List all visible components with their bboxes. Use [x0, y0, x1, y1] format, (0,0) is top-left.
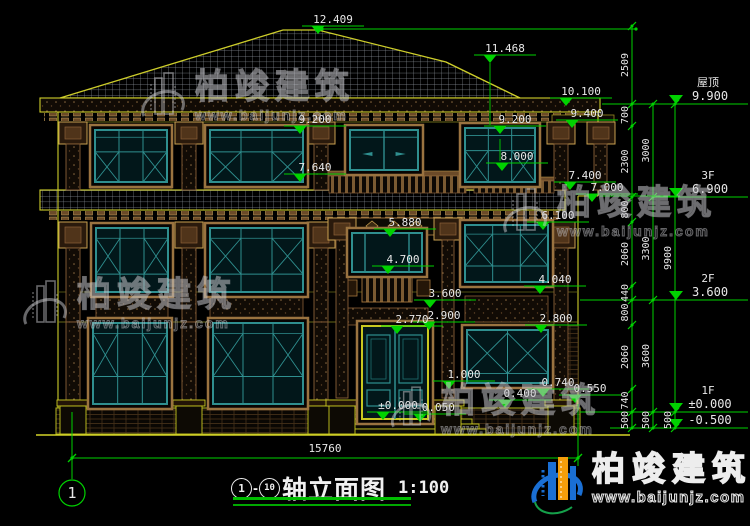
overall-width-value: 15760 — [308, 442, 341, 455]
elevation-value: 2.800 — [539, 312, 572, 325]
storey-level-marker: 屋顶9.900 — [654, 76, 748, 104]
window-1f-mid — [208, 318, 308, 409]
elevation-value: 4.040 — [538, 273, 571, 286]
pilaster-shaft — [66, 248, 80, 322]
marker-triangle — [484, 55, 497, 63]
dim-node — [631, 25, 634, 28]
elevation-value: 9.200 — [298, 113, 331, 126]
dim-chain-value: 3600 — [641, 344, 652, 368]
window-3f-mid — [205, 125, 308, 187]
pilaster-capital-inset — [313, 227, 329, 243]
window-frame — [93, 323, 167, 404]
axis-bubble-number: 1 — [67, 484, 76, 502]
pilaster-shaft — [66, 322, 80, 400]
elevation-value: 7.640 — [298, 161, 331, 174]
elevation-value: 2.900 — [427, 309, 460, 322]
window-frame — [465, 225, 548, 282]
dim-node — [652, 103, 655, 106]
elevation-value: 11.468 — [485, 42, 525, 55]
pilaster-base — [548, 406, 574, 434]
title-separator: - — [253, 480, 258, 497]
brand-logo-url: www.baijunjz.com — [592, 489, 750, 506]
pilaster-base-cap — [326, 400, 358, 406]
storey-name: 屋顶 — [697, 76, 719, 89]
elevation-value: 1.000 — [447, 368, 480, 381]
axis-from-bubble: 1 — [231, 478, 252, 499]
window-3f-left — [90, 125, 172, 187]
elevation-value: 5.880 — [388, 216, 421, 229]
pilaster-capital-inset — [553, 127, 569, 139]
marker-triangle — [499, 400, 512, 408]
marker-triangle — [424, 300, 437, 308]
dim-chain-value: 9900 — [663, 246, 674, 270]
window-2f-mid — [205, 223, 308, 297]
storey-elevation: 3.600 — [692, 285, 728, 299]
elevation-marker: 7.000 — [576, 181, 638, 202]
dim-chain-value: 3300 — [641, 236, 652, 260]
pilaster-shaft — [182, 248, 196, 322]
window-frame — [210, 228, 303, 292]
pilaster-shaft — [314, 322, 328, 400]
elevation-value: 6.100 — [541, 209, 574, 222]
elevation-value: 3.600 — [428, 287, 461, 300]
dim-chain-value: 700 — [620, 106, 631, 124]
pilaster-capital-inset — [313, 127, 329, 139]
elevation-value: 12.409 — [313, 13, 353, 26]
pilaster-capital-inset — [65, 127, 81, 139]
cad-canvas: 12.40911.46810.1009.4009.2009.2008.0007.… — [0, 0, 750, 526]
pilaster-base — [329, 406, 355, 434]
window-frame — [95, 130, 167, 182]
elevation-value: 2.770 — [395, 313, 428, 326]
dim-chain-value: 500 — [620, 411, 631, 429]
dim-node — [631, 324, 634, 327]
house-facade — [36, 30, 630, 435]
dim-chain-value: 2060 — [620, 242, 631, 266]
elevation-value: 0.400 — [503, 387, 536, 400]
storey-elevation: -0.500 — [688, 413, 731, 427]
dim-node — [631, 221, 634, 224]
pilaster-base — [60, 406, 86, 434]
brand-logo-icon — [528, 452, 586, 516]
pent-roof-band — [40, 190, 565, 220]
dim-chain-value: 2300 — [620, 149, 631, 173]
storey-level-marker: 3F6.900 — [654, 169, 748, 197]
marker-triangle — [537, 389, 550, 397]
dim-chain-value: 2060 — [620, 345, 631, 369]
pilaster-capital-inset — [181, 127, 197, 139]
dim-chain: 9900500 — [663, 100, 679, 432]
dim-chain: 300033003600500 — [641, 100, 657, 432]
elevation-value: -0.050 — [415, 401, 455, 414]
axis-bubble: 1 — [59, 480, 85, 506]
main-hip-roof — [60, 30, 520, 98]
dim-node — [631, 388, 634, 391]
elevation-marker: 11.468 — [474, 42, 536, 63]
storey-elevation: 6.900 — [692, 182, 728, 196]
dim-node — [631, 103, 634, 106]
elevation-value: 9.400 — [570, 107, 603, 120]
pilaster-base — [176, 406, 202, 434]
title-scale: 1:100 — [398, 478, 449, 498]
level-triangle — [669, 291, 683, 300]
dim-chain-value: 3000 — [641, 138, 652, 162]
marker-triangle — [534, 286, 547, 294]
dim-chain-value: 440 — [620, 284, 631, 302]
title-underline — [233, 497, 411, 506]
elevation-value: 0.550 — [573, 382, 606, 395]
dim-chain-value: 500 — [641, 411, 652, 429]
pilaster-capital-inset — [553, 227, 569, 243]
window-1f-left — [88, 318, 172, 409]
pilaster-shaft — [182, 322, 196, 400]
pilaster-shaft — [182, 144, 196, 190]
storey-name: 2F — [701, 272, 714, 285]
balcony-door-3f — [345, 125, 423, 175]
extension-dot — [634, 27, 637, 30]
dim-chain-value: 740 — [620, 391, 631, 409]
dim-chain: 2509700230080020604408002060740500 — [620, 22, 636, 432]
storey-level-marker: 1F±0.000 — [654, 384, 748, 412]
brand-logo-text: 柏竣建筑 — [592, 452, 750, 487]
pilaster-capital-inset — [593, 127, 609, 139]
dim-node — [652, 299, 655, 302]
dim-node — [70, 456, 73, 459]
dim-chain-value: 500 — [663, 411, 674, 429]
dim-chain-value: 2509 — [620, 53, 631, 77]
window-frame — [96, 228, 168, 292]
axis-to-bubble: 10 — [259, 478, 280, 499]
elevation-drawing-sheet: 12.40911.46810.1009.4009.2009.2008.0007.… — [0, 0, 750, 526]
dim-node — [631, 196, 634, 199]
elevation-value: 10.100 — [561, 85, 601, 98]
elevation-value: 7.000 — [590, 181, 623, 194]
dim-node — [674, 103, 677, 106]
storey-name: 3F — [701, 169, 714, 182]
storey-elevation: 9.900 — [692, 89, 728, 103]
storey-elevation: ±0.000 — [688, 397, 731, 411]
window-2f-left — [91, 223, 173, 297]
elevation-value: ±0.000 — [378, 399, 418, 412]
brand-logo-block: 柏竣建筑 www.baijunjz.com — [528, 452, 750, 516]
dim-chain-value: 800 — [620, 303, 631, 321]
pilaster-shaft — [314, 248, 328, 322]
dim-chain-value: 800 — [620, 200, 631, 218]
pilaster-capital-inset — [440, 223, 456, 235]
dim-node — [652, 196, 655, 199]
elevation-value: 0.740 — [541, 376, 574, 389]
marker-triangle — [586, 194, 599, 202]
storey-level-marker: 2F3.600 — [654, 272, 748, 300]
elevation-value: 8.000 — [500, 150, 533, 163]
storey-name: 1F — [701, 384, 714, 397]
window-frame — [213, 323, 303, 404]
elevation-value: 9.200 — [498, 113, 531, 126]
elevation-value: 4.700 — [386, 253, 419, 266]
pilaster-base-cap — [545, 400, 577, 406]
pilaster-capital-inset — [65, 227, 81, 243]
pilaster-capital-inset — [181, 227, 197, 243]
pilaster-base-cap — [173, 400, 205, 406]
pilaster-base-cap — [57, 400, 89, 406]
pilaster-shaft — [66, 144, 80, 190]
